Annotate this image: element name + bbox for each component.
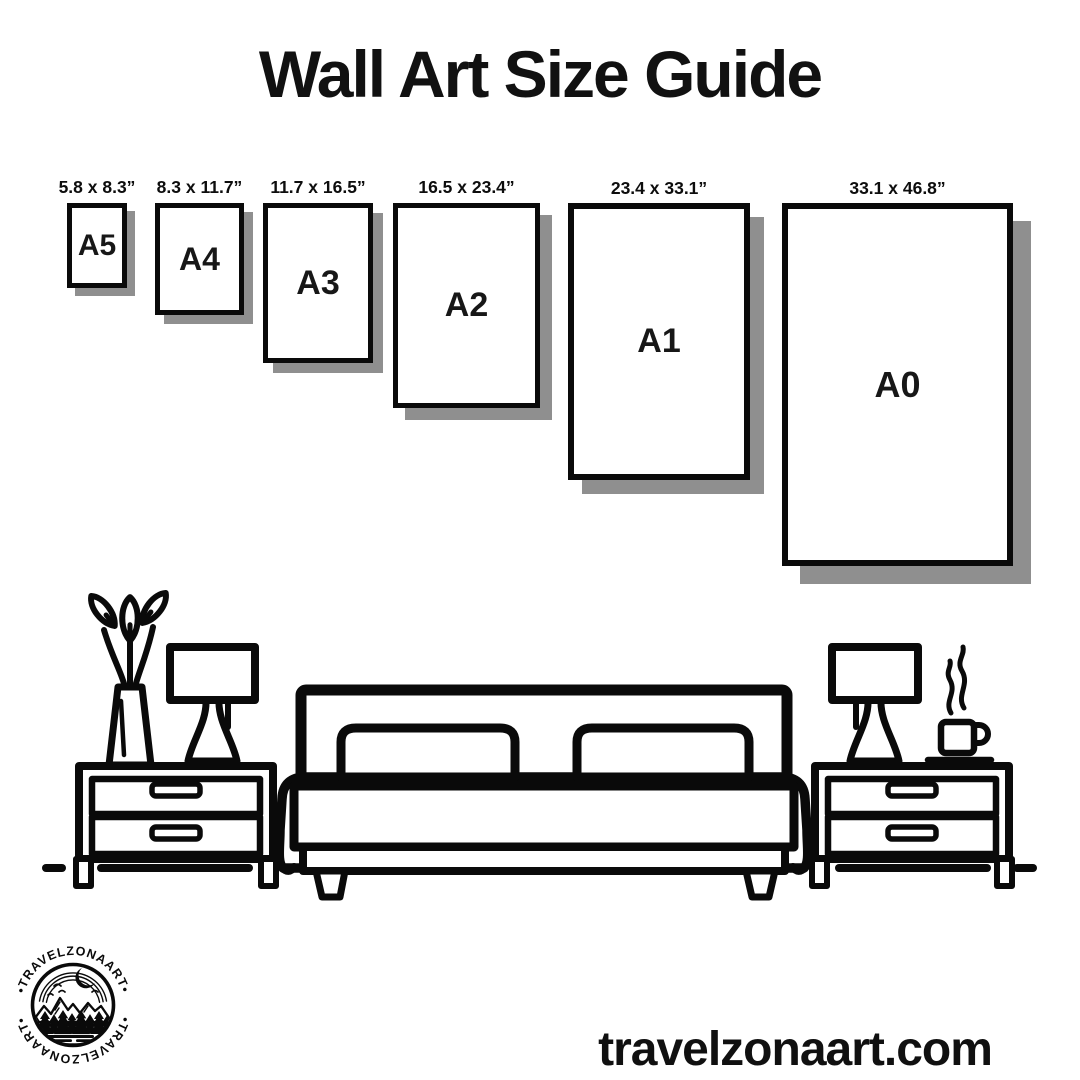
size-dimensions-label: 23.4 x 33.1” (611, 178, 707, 199)
size-frame-a3: 11.7 x 16.5” A3 (263, 203, 373, 363)
size-frame-a0: 33.1 x 46.8” A0 (782, 203, 1013, 566)
size-dimensions-label: 5.8 x 8.3” (59, 177, 136, 198)
size-frame-a2: 16.5 x 23.4” A2 (393, 203, 540, 408)
table-lamp-left-icon (170, 647, 255, 761)
pillow-left (341, 728, 515, 777)
bed-base (303, 847, 785, 871)
website-url: travelzonaart.com (550, 1022, 1040, 1077)
size-frame-a4: 8.3 x 11.7” A4 (155, 203, 244, 315)
size-guide-poster: Wall Art Size Guide 5.8 x 8.3” A5 8.3 x … (0, 0, 1080, 1080)
size-code-label: A4 (179, 241, 220, 278)
table-lamp-right-icon (832, 647, 918, 761)
size-frame-a1: 23.4 x 33.1” A1 (568, 203, 750, 480)
travelzonaart-logo: •TRAVELZONAART• •TRAVELZONAART• (10, 942, 136, 1068)
bedroom-scene-illustration (0, 575, 1080, 905)
vase-with-plant-icon (86, 589, 171, 765)
double-bed-icon (279, 690, 808, 897)
size-dimensions-label: 16.5 x 23.4” (418, 177, 514, 198)
blanket-fold (294, 786, 794, 847)
pillow-right (577, 728, 749, 777)
page-title: Wall Art Size Guide (0, 36, 1080, 112)
size-code-label: A2 (445, 286, 488, 325)
size-dimensions-label: 33.1 x 46.8” (849, 178, 945, 199)
coffee-cup-icon (928, 647, 991, 760)
size-code-label: A0 (874, 364, 920, 406)
size-dimensions-label: 8.3 x 11.7” (157, 177, 243, 198)
size-code-label: A3 (296, 264, 339, 303)
size-dimensions-label: 11.7 x 16.5” (270, 177, 365, 198)
size-code-label: A5 (78, 229, 116, 263)
size-frame-a5: 5.8 x 8.3” A5 (67, 203, 127, 288)
size-code-label: A1 (637, 322, 680, 361)
